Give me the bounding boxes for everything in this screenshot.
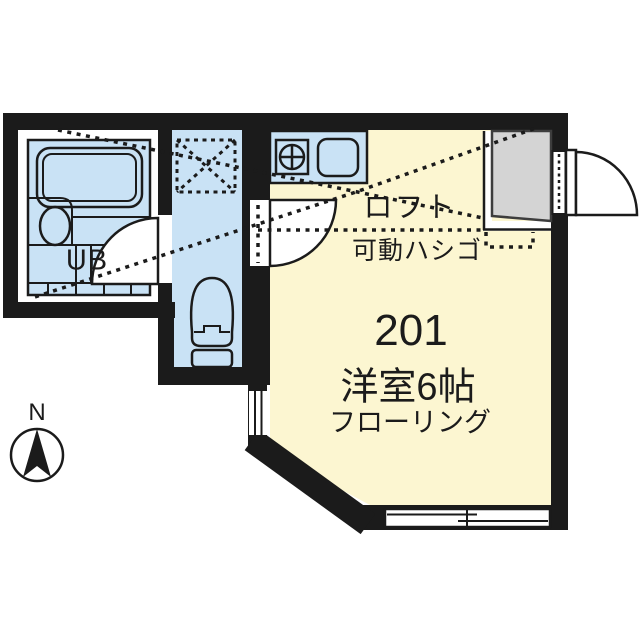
west-window (249, 391, 268, 435)
floor-plan-drawing (0, 0, 640, 640)
wall-top (3, 113, 568, 130)
compass-north-label: N (28, 399, 45, 427)
entry-area (483, 131, 551, 231)
wall-bath-bottom (3, 302, 175, 318)
floor-plan: ロフト 可動ハシゴ 201 洋室6帖 フローリング UB N (0, 0, 640, 640)
ladder-label: 可動ハシゴ (352, 231, 482, 267)
flooring-label: フローリング (329, 401, 491, 440)
entrance-door-swing (576, 152, 637, 215)
entrance-door-leaf (566, 150, 576, 215)
compass (11, 429, 63, 481)
entry-floor (492, 131, 551, 221)
toilet-door-opening (250, 200, 270, 266)
unit-number-label: 201 (374, 306, 447, 356)
loft-label: ロフト (363, 184, 456, 226)
unit-bath-label: UB (66, 245, 108, 278)
wall-left (3, 113, 18, 318)
bath-door-opening (158, 215, 172, 283)
